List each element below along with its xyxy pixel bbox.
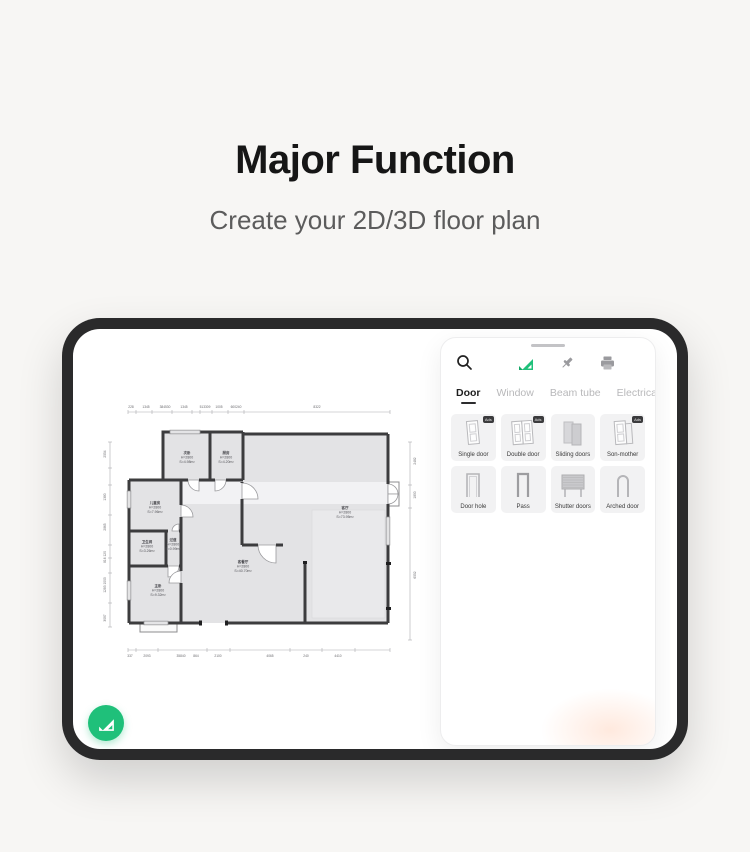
shutter-doors-icon [558,470,588,505]
room-label: 厨房H=2800S=4.20m² [218,451,233,465]
dim-top-1: 228 [128,405,133,409]
tab-window[interactable]: Window [497,387,534,399]
printer-icon[interactable] [599,355,616,376]
son-mother-door-icon [610,418,636,453]
dim-left-6: 3097 [103,614,107,621]
app-screen: 228 1345 384530 1345 513309 1005 600240 … [73,329,677,749]
item-shutter-doors[interactable]: Shutter doors [551,466,596,513]
dim-left-2: 1380 [103,493,107,500]
tablet-frame: 228 1345 384530 1345 513309 1005 600240 … [62,318,688,760]
dim-left-5: 1283 1000 [103,577,107,592]
category-tabs: Door Window Beam tube Electrical Water [441,379,655,410]
room-label: 主卧H=2800S=9.32m² [150,584,165,598]
room-label: 卫生间H=2800S=3.26m² [139,540,154,554]
single-door-icon [460,418,486,453]
dim-left-4: 816 120 [103,551,107,563]
dim-bottom-2: 2093 [143,654,150,658]
panel-toolbar [441,351,655,379]
dim-right-3: 6552 [413,571,417,578]
item-double-door[interactable]: Ads Double door [501,414,546,461]
item-single-door[interactable]: Ads Single door [451,414,496,461]
dim-bottom-6: 4065 [266,654,273,658]
pass-icon [510,470,536,505]
tab-electrical[interactable]: Electrical [617,387,655,399]
dim-bottom-7: 240 [303,654,308,658]
dim-bottom-4: 864 [193,654,198,658]
dim-top-3: 384530 [160,405,171,409]
arched-door-icon [610,470,636,505]
double-door-icon [509,418,537,453]
app-logo-button[interactable] [88,705,124,741]
dim-top-2: 1345 [142,405,149,409]
dim-left-3: 2865 [103,523,107,530]
door-items-grid: Ads Single door Ads Double door Sliding … [441,410,655,517]
dim-top-8: 8322 [313,405,320,409]
dim-bottom-8: 4410 [334,654,341,658]
set-square-icon [97,714,116,733]
dim-left-1: 2554 [103,450,107,457]
item-son-mother-door[interactable]: Ads Son-mother [600,414,645,461]
app-logo-icon[interactable] [517,354,535,377]
door-hole-icon [460,470,486,505]
item-pass[interactable]: Pass [501,466,546,513]
pin-icon[interactable] [559,355,575,376]
floor-plan-drawing [100,395,440,675]
materials-panel: Door Window Beam tube Electrical Water A… [440,337,656,746]
room-label: 客餐厅H=2800S=40.70m² [234,560,251,574]
dim-top-4: 1345 [180,405,187,409]
dim-top-6: 1005 [215,405,222,409]
room-label: 客厅H=2800S=73.95m² [336,506,353,520]
search-icon[interactable] [456,354,473,376]
dim-right-1: 2482 [413,457,417,464]
page-subtitle: Create your 2D/3D floor plan [0,205,750,236]
item-door-hole[interactable]: Door hole [451,466,496,513]
page-title: Major Function [0,138,750,183]
dim-top-5: 513309 [200,405,211,409]
dim-bottom-1: 337 [127,654,132,658]
dim-top-7: 600240 [231,405,242,409]
panel-drag-handle[interactable] [531,344,565,347]
room-label: 次卧H=2800S=4.98m² [179,451,194,465]
dim-bottom-3: 35840 [176,654,185,658]
sliding-doors-icon [560,418,586,453]
item-arched-door[interactable]: Arched door [600,466,645,513]
dim-right-2: 1800 [413,491,417,498]
tab-door[interactable]: Door [456,387,481,404]
tab-beam-tube[interactable]: Beam tube [550,387,601,399]
room-label: 过道H=2800S=0.99m² [165,538,180,552]
room-label: 儿童房H=2800S=7.96m² [147,501,162,515]
dim-bottom-5: 2100 [214,654,221,658]
floor-plan-canvas[interactable]: 228 1345 384530 1345 513309 1005 600240 … [100,395,440,675]
item-sliding-doors[interactable]: Sliding doors [551,414,596,461]
